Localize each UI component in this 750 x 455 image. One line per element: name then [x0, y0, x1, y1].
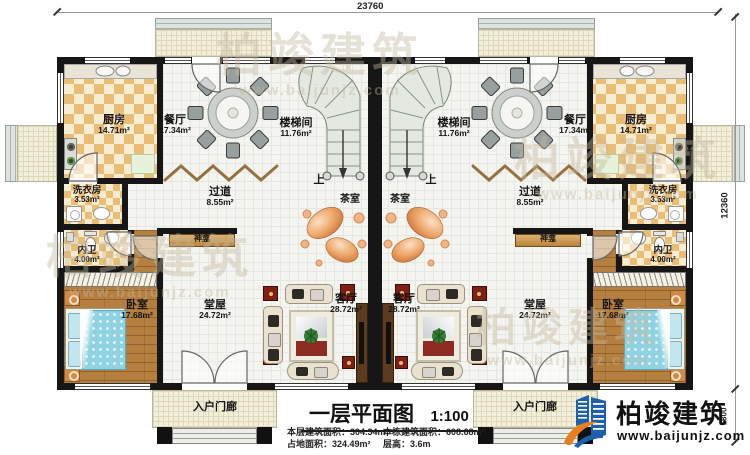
stairs-up-label: 上 — [419, 174, 443, 186]
room-label-hall: 堂屋 24.72m² — [175, 299, 255, 320]
kitchen-sink-icon — [620, 66, 634, 76]
kitchen-door — [653, 153, 681, 181]
logo-company-name: 柏竣建筑 — [616, 394, 728, 431]
kitchen-sink-icon — [116, 66, 130, 76]
logo-website: www.baijunjz.com — [617, 428, 745, 443]
room-label-bedroom: 卧室 17.68m² — [573, 299, 653, 320]
dimension-line-top — [57, 12, 718, 13]
room-label-laundry: 洗衣房 3.53m² — [623, 186, 703, 205]
room-label-bathroom: 内卫 4.00m² — [47, 246, 127, 265]
plan-scale: 1:100 — [430, 408, 468, 425]
side-terrace-steps — [732, 125, 745, 182]
bedroom-door — [593, 236, 617, 260]
dimension-line-right — [735, 14, 736, 443]
zigzag-screen — [165, 166, 277, 180]
room-label-stairwell: 楼梯间 11.76m² — [414, 117, 494, 138]
tea-stones — [384, 201, 449, 267]
room-label-tearoom: 茶室 — [328, 194, 372, 205]
room-label-dining: 餐厅 17.34m² — [135, 114, 215, 135]
plan-title: 一层平面图 — [309, 403, 414, 426]
entry-door-leaf — [536, 351, 568, 383]
floorplan-canvas: 23760 12360 1800 — [0, 0, 750, 455]
unit-overlay-graphics — [375, 18, 693, 445]
dimension-label-top: 23760 — [357, 1, 383, 12]
room-label-bedroom: 卧室 17.68m² — [97, 299, 177, 320]
room-label-bathroom: 内卫 4.00m² — [623, 246, 703, 265]
kitchen-sink-icon — [636, 66, 654, 76]
unit-right: 厨房 14.71m² 餐厅 17.34m² 楼梯间 11.76m² 洗衣房 3.… — [375, 18, 693, 445]
plant-icon — [304, 328, 318, 344]
plant-icon — [432, 328, 446, 344]
room-label-corridor: 过道 8.55m² — [180, 186, 260, 207]
kitchen-sink-icon — [96, 66, 114, 76]
company-logo: 柏竣建筑 www.baijunjz.com — [556, 392, 750, 454]
shrine-label: 神龛 — [515, 235, 581, 244]
terrace-door — [192, 64, 220, 92]
stat-floor-area: 本层建筑面积：304.34m² — [287, 425, 383, 437]
room-label-living: 客厅 28.72m² — [306, 293, 386, 314]
side-terrace — [17, 125, 57, 182]
room-label-stairwell: 楼梯间 11.76m² — [256, 117, 336, 138]
unit-left: 厨房 14.71m² 餐厅 17.34m² 楼梯间 11.76m² 洗衣房 3.… — [57, 18, 375, 445]
zigzag-screen — [473, 166, 585, 180]
terrace-door — [530, 64, 558, 92]
logo-building-icon — [556, 392, 614, 450]
shrine-label: 神龛 — [169, 235, 235, 244]
entry-door-leaf — [182, 351, 214, 383]
room-label-tearoom: 茶室 — [378, 194, 422, 205]
porch-label: 入户门廊 — [175, 401, 255, 413]
entry-door-leaf — [215, 351, 247, 383]
room-label-laundry: 洗衣房 3.53m² — [47, 186, 127, 205]
unit-overlay-graphics — [57, 18, 375, 445]
room-label-hall: 堂屋 24.72m² — [495, 299, 575, 320]
entry-door-leaf — [503, 351, 535, 383]
tea-stones — [301, 201, 366, 267]
stat-storey-height: 层高：3.6m — [383, 437, 485, 449]
bedroom-door — [133, 236, 157, 260]
dimension-tick — [714, 8, 722, 16]
stairs-up-label: 上 — [307, 174, 331, 186]
dimension-label-right: 12360 — [720, 192, 731, 218]
area-statistics: 本层建筑面积：304.34m² 本栋建筑面积：608.68m² 占地面积：324… — [287, 425, 485, 449]
side-terrace — [693, 125, 733, 182]
stat-building-area: 本栋建筑面积：608.68m² — [383, 425, 485, 437]
stat-footprint-area: 占地面积：324.49m² — [287, 437, 383, 449]
room-label-dining: 餐厅 17.34m² — [535, 114, 615, 135]
kitchen-door — [69, 153, 97, 181]
room-label-corridor: 过道 8.55m² — [490, 186, 570, 207]
